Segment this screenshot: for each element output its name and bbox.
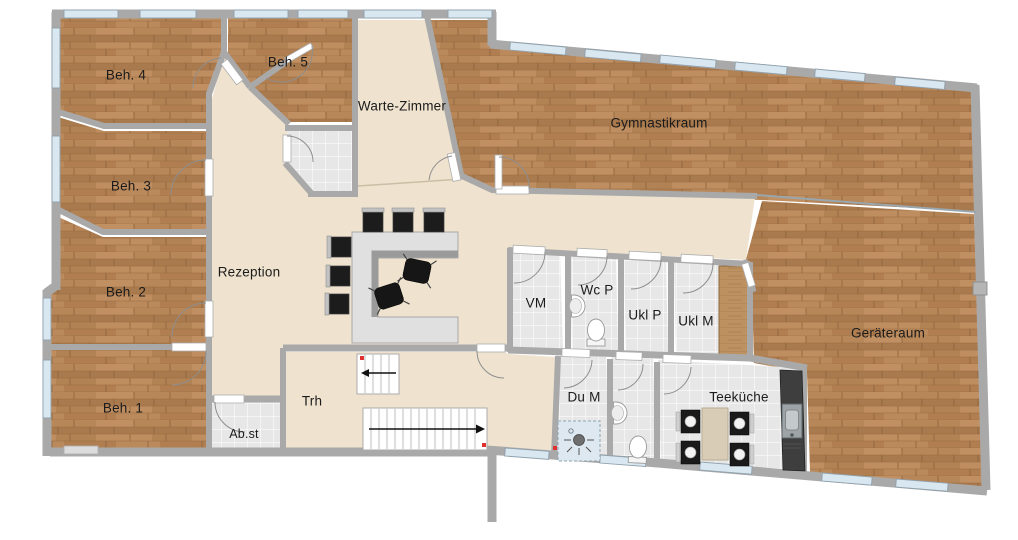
chair-icon — [329, 294, 349, 314]
room-label-du-m: Du M — [567, 390, 600, 405]
room-uklp-floor — [624, 257, 668, 354]
floor-plan: Beh. 4 Beh. 5 Beh. 3 Beh. 2 Beh. 1 Warte… — [0, 0, 1018, 540]
window — [298, 10, 348, 18]
room-label-beh5: Beh. 5 — [268, 55, 308, 70]
door-beh3 — [205, 159, 213, 196]
room-label-beh3: Beh. 3 — [111, 179, 151, 194]
toilet-icon — [587, 319, 605, 346]
chair-icon — [330, 266, 350, 286]
window — [234, 10, 288, 18]
room-abst-floor — [212, 402, 280, 450]
window — [52, 28, 60, 88]
door-smallwc — [283, 135, 291, 162]
door-bump — [973, 282, 987, 295]
door-teekueche — [663, 355, 691, 364]
window — [364, 10, 422, 18]
marker-red — [553, 446, 557, 450]
room-label-trh: Trh — [302, 394, 322, 409]
door-beh2 — [205, 301, 213, 337]
chair-icon — [393, 212, 413, 232]
door-vm — [513, 245, 545, 255]
stair-marker — [482, 443, 486, 447]
bench — [719, 266, 748, 357]
door-beh1 — [172, 343, 206, 351]
door-uklp — [629, 251, 661, 261]
room-label-wc-p: Wc P — [580, 283, 613, 298]
room-label-beh2: Beh. 2 — [106, 285, 146, 300]
room-label-abst: Ab.st — [229, 427, 259, 441]
window — [64, 10, 118, 18]
floor-plan-svg — [0, 0, 1018, 540]
room-label-ukl-m: Ukl M — [678, 314, 714, 329]
door-uklm — [681, 254, 713, 264]
window — [43, 298, 51, 340]
door-wcp — [577, 248, 607, 258]
room-beh2-floor — [47, 216, 206, 344]
kitchen-table — [702, 408, 728, 460]
room-label-beh4: Beh. 4 — [106, 68, 146, 83]
stair-marker — [360, 356, 364, 360]
room-label-teekueche: Teeküche — [709, 390, 768, 405]
room-label-rezeption: Rezeption — [218, 265, 281, 280]
door-gym-leaf — [495, 155, 502, 189]
window-sill — [64, 446, 98, 454]
wall-dum-west — [554, 356, 558, 457]
door-wc2 — [616, 352, 642, 361]
door-trh — [477, 344, 505, 352]
room-label-gymnastikraum: Gymnastikraum — [610, 116, 707, 131]
stairs-long — [363, 408, 487, 450]
door-dum — [562, 349, 590, 358]
room-beh1-floor — [47, 350, 206, 448]
window — [140, 10, 196, 18]
room-label-beh1: Beh. 1 — [103, 401, 143, 416]
window — [43, 360, 51, 418]
shower-icon — [558, 421, 600, 461]
room-label-geraeteraum: Geräteraum — [851, 326, 925, 341]
room-label-vm: VM — [526, 296, 547, 311]
window — [52, 136, 60, 202]
room-beh3-floor — [58, 117, 206, 234]
chair-icon — [331, 237, 351, 257]
door-abst — [214, 395, 244, 403]
room-label-warte-zimmer: Warte-Zimmer — [358, 99, 446, 114]
chair-icon — [424, 212, 444, 232]
room-label-ukl-p: Ukl P — [628, 308, 661, 323]
kitchen-counter — [780, 370, 805, 471]
chair-icon — [363, 212, 383, 232]
window — [448, 10, 492, 18]
